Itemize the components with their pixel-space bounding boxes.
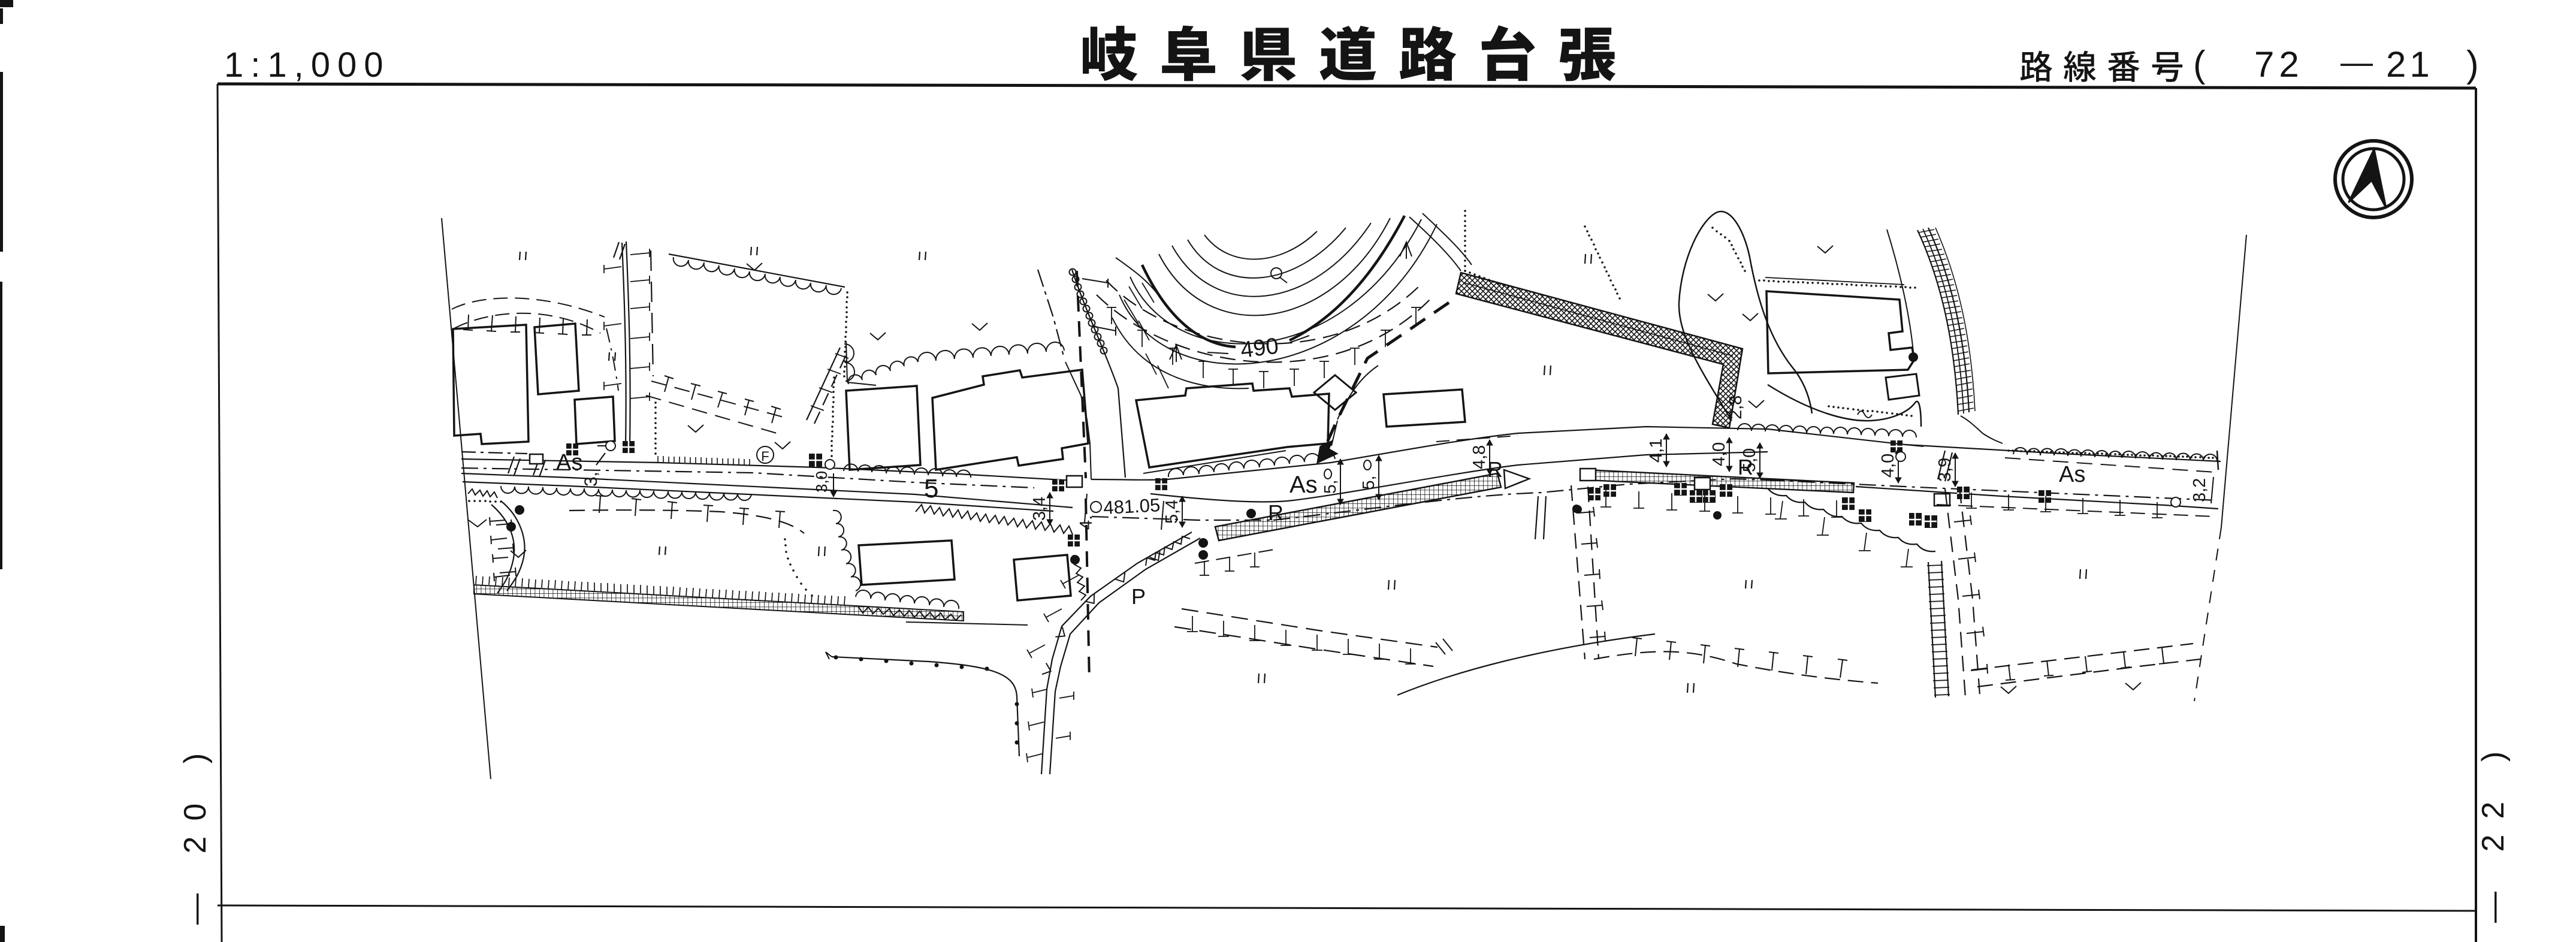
svg-text:5,: 5, [1321, 480, 1339, 494]
svg-text:— 22 ): — 22 ) [2476, 736, 2511, 923]
svg-text:4.: 4. [1077, 515, 1096, 530]
svg-text:4,0: 4,0 [1879, 454, 1898, 478]
svg-text:(: ( [2193, 44, 2206, 85]
svg-text:— 20 ): — 20 ) [178, 738, 213, 925]
svg-text:5,: 5, [1359, 476, 1378, 490]
svg-text:3,4: 3,4 [1030, 497, 1049, 521]
svg-text:F: F [761, 449, 769, 464]
svg-text:4,1: 4,1 [1647, 439, 1666, 463]
svg-text:P: P [1131, 584, 1146, 609]
svg-text:72: 72 [2254, 44, 2304, 84]
svg-text:5,4: 5,4 [1162, 500, 1182, 524]
svg-text:21: 21 [2386, 44, 2433, 84]
svg-text:5: 5 [924, 474, 938, 503]
svg-text:As: As [1289, 472, 1318, 498]
svg-text:490: 490 [1239, 334, 1280, 363]
svg-text:3,0: 3,0 [813, 471, 831, 493]
svg-text:481.05: 481.05 [1103, 494, 1161, 518]
svg-text:5,0: 5,0 [1740, 448, 1759, 472]
svg-text:1:1,000: 1:1,000 [224, 46, 391, 84]
svg-text:3,2: 3,2 [2190, 478, 2209, 502]
svg-text:As: As [2059, 462, 2085, 487]
svg-text:4,0: 4,0 [1710, 442, 1729, 466]
svg-text:—: — [2341, 44, 2373, 80]
svg-text:): ) [2466, 44, 2479, 85]
svg-text:4,8: 4,8 [1470, 445, 1489, 469]
svg-text:3,: 3, [581, 472, 601, 487]
